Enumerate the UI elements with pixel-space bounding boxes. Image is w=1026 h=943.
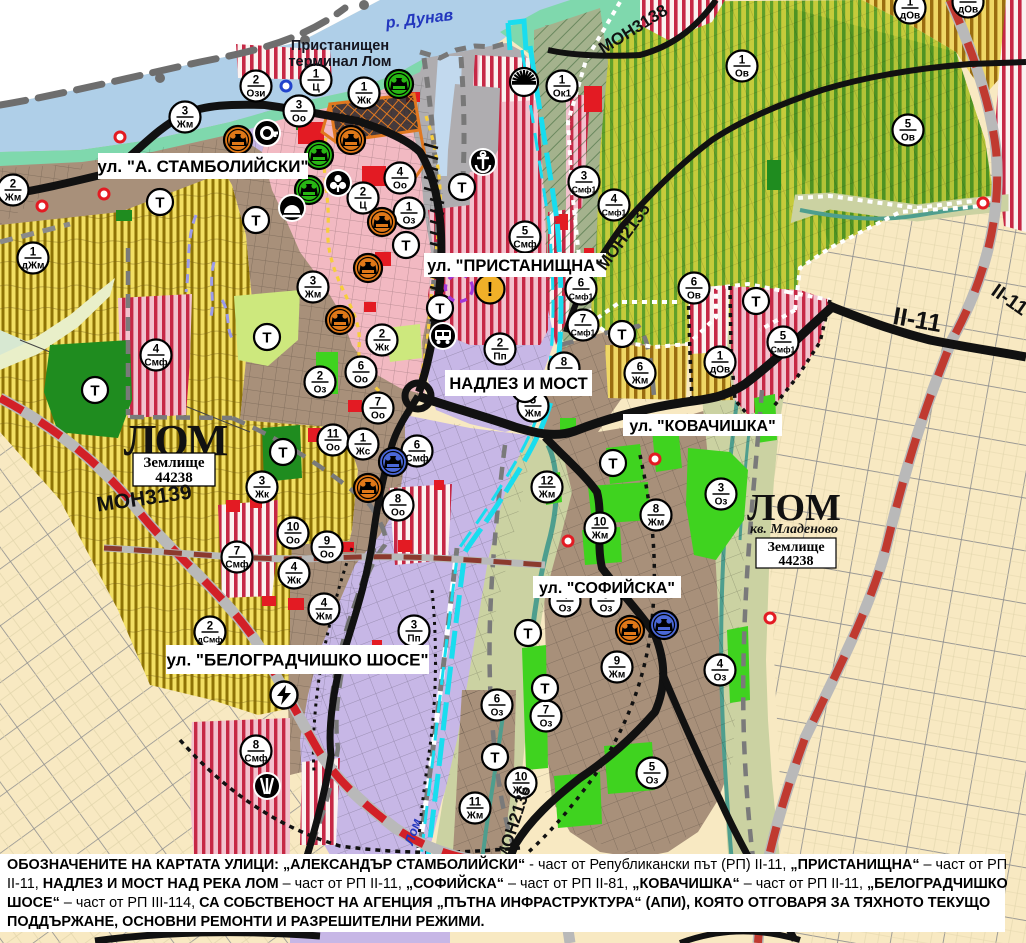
svg-text:Жс: Жс <box>355 447 371 458</box>
svg-text:4: 4 <box>153 344 160 356</box>
svg-text:Оз: Оз <box>715 497 728 508</box>
svg-text:Т: Т <box>155 195 164 212</box>
svg-text:3: 3 <box>296 100 302 112</box>
svg-text:Землище: Землище <box>143 455 205 471</box>
svg-text:2: 2 <box>360 187 366 199</box>
svg-text:10: 10 <box>515 772 528 784</box>
svg-text:Смф: Смф <box>225 559 248 571</box>
svg-text:2: 2 <box>207 621 213 633</box>
svg-text:4: 4 <box>717 659 724 671</box>
svg-text:2: 2 <box>253 75 259 87</box>
svg-text:Т: Т <box>278 445 287 462</box>
svg-text:5: 5 <box>522 226 529 238</box>
svg-text:Смф1: Смф1 <box>569 292 594 302</box>
svg-text:Жк: Жк <box>356 96 372 107</box>
svg-text:Смф1: Смф1 <box>571 328 596 338</box>
svg-text:10: 10 <box>287 522 300 534</box>
svg-text:Пристанищен: Пристанищен <box>291 38 389 54</box>
svg-text:3: 3 <box>259 476 265 488</box>
svg-text:Смф: Смф <box>405 453 428 465</box>
svg-text:Жк: Жк <box>254 490 270 501</box>
svg-text:ул. "СОФИЙСКА": ул. "СОФИЙСКА" <box>539 578 675 597</box>
svg-text:Смф: Смф <box>244 753 267 765</box>
svg-text:Жм: Жм <box>538 490 555 501</box>
svg-text:Ов: Ов <box>901 133 915 144</box>
svg-text:2: 2 <box>317 371 323 383</box>
svg-text:Оо: Оо <box>292 114 306 125</box>
svg-text:7: 7 <box>580 314 586 326</box>
svg-text:дСмф: дСмф <box>197 635 223 645</box>
svg-text:Жм: Жм <box>631 376 648 387</box>
svg-text:кв. Младеново: кв. Младеново <box>750 522 838 537</box>
svg-text:дОв: дОв <box>900 11 920 22</box>
svg-text:Смф: Смф <box>144 357 167 369</box>
svg-text:5: 5 <box>905 119 912 131</box>
svg-text:Оо: Оо <box>371 411 385 422</box>
svg-text:Землище: Землище <box>767 540 824 555</box>
svg-text:Т: Т <box>617 327 626 344</box>
svg-text:Ов: Ов <box>735 69 749 80</box>
svg-text:терминал Лом: терминал Лом <box>288 54 391 70</box>
svg-text:Жм: Жм <box>524 409 541 420</box>
svg-text:ул. "А. СТАМБОЛИЙСКИ": ул. "А. СТАМБОЛИЙСКИ" <box>97 157 308 176</box>
svg-text:Оз: Оз <box>491 708 504 719</box>
svg-text:Оз: Оз <box>714 673 727 684</box>
svg-text:6: 6 <box>691 277 697 289</box>
svg-text:дЖм: дЖм <box>22 261 45 272</box>
svg-text:Жм: Жм <box>4 193 21 204</box>
svg-text:Т: Т <box>251 213 260 230</box>
svg-text:9: 9 <box>324 536 330 548</box>
svg-text:8: 8 <box>395 494 402 506</box>
svg-text:1: 1 <box>965 0 972 3</box>
svg-text:Оо: Оо <box>354 375 368 386</box>
svg-text:ул. "ПРИСТАНИЩНА": ул. "ПРИСТАНИЩНА" <box>427 257 603 275</box>
svg-text:Оз: Оз <box>600 604 613 615</box>
svg-text:6: 6 <box>414 440 420 452</box>
svg-text:Жм: Жм <box>647 518 664 529</box>
svg-text:Жм: Жм <box>315 612 332 623</box>
svg-text:Жм: Жм <box>176 120 193 131</box>
svg-text:Пп: Пп <box>493 352 506 363</box>
svg-text:Ок1: Ок1 <box>553 89 572 100</box>
svg-text:8: 8 <box>653 504 660 516</box>
svg-text:Оз: Оз <box>314 385 327 396</box>
svg-text:ул. "КОВАЧИШКА": ул. "КОВАЧИШКА" <box>629 418 775 435</box>
svg-text:Оо: Оо <box>320 550 334 561</box>
svg-text:Оз: Оз <box>403 216 416 227</box>
svg-text:Смф: Смф <box>513 239 536 251</box>
svg-text:Жм: Жм <box>608 670 625 681</box>
svg-text:Оо: Оо <box>391 508 405 519</box>
svg-text:Т: Т <box>401 238 410 255</box>
svg-text:дОв: дОв <box>710 365 730 376</box>
svg-text:1: 1 <box>30 247 37 259</box>
svg-text:Жк: Жк <box>374 343 390 354</box>
svg-text:1: 1 <box>717 351 724 363</box>
svg-text:дОв: дОв <box>958 5 978 16</box>
svg-text:Оз: Оз <box>646 776 659 787</box>
svg-text:5: 5 <box>780 331 787 343</box>
svg-text:8: 8 <box>561 357 568 369</box>
svg-text:1: 1 <box>313 69 320 81</box>
svg-text:1: 1 <box>907 0 914 9</box>
svg-text:1: 1 <box>406 202 413 214</box>
svg-text:10: 10 <box>594 517 607 529</box>
svg-text:6: 6 <box>494 694 500 706</box>
svg-text:Пп: Пп <box>407 634 420 645</box>
svg-text:8: 8 <box>253 740 260 752</box>
svg-text:Оо: Оо <box>286 536 300 547</box>
svg-text:1: 1 <box>361 82 368 94</box>
svg-text:Смф1: Смф1 <box>602 208 627 218</box>
svg-text:1: 1 <box>360 433 367 445</box>
svg-text:Ц: Ц <box>359 201 367 212</box>
svg-text:6: 6 <box>358 361 364 373</box>
svg-text:Т: Т <box>540 681 549 698</box>
svg-text:Смф1: Смф1 <box>572 185 597 195</box>
svg-text:1: 1 <box>739 55 746 67</box>
svg-text:ул. "БЕЛОГРАДЧИШКО ШОСЕ": ул. "БЕЛОГРАДЧИШКО ШОСЕ" <box>166 651 428 670</box>
svg-text:9: 9 <box>614 656 620 668</box>
svg-text:Ози: Ози <box>247 89 266 100</box>
svg-text:Оо: Оо <box>393 181 407 192</box>
svg-text:3: 3 <box>718 483 724 495</box>
svg-text:!: ! <box>487 279 494 301</box>
svg-text:Т: Т <box>457 180 466 197</box>
svg-text:4: 4 <box>397 167 404 179</box>
svg-text:Оз: Оз <box>559 604 572 615</box>
svg-text:11: 11 <box>327 429 340 441</box>
svg-text:3: 3 <box>182 106 188 118</box>
svg-text:Жк: Жк <box>286 576 302 587</box>
svg-text:7: 7 <box>375 397 381 409</box>
svg-text:Т: Т <box>523 626 532 643</box>
svg-text:6: 6 <box>637 362 643 374</box>
svg-text:2: 2 <box>497 338 503 350</box>
svg-text:НАДЛЕЗ И МОСТ: НАДЛЕЗ И МОСТ <box>449 375 587 393</box>
svg-text:11: 11 <box>469 797 482 809</box>
svg-text:44238: 44238 <box>779 554 814 569</box>
svg-text:4: 4 <box>291 562 298 574</box>
svg-text:3: 3 <box>411 620 417 632</box>
svg-text:Т: Т <box>490 750 499 767</box>
svg-text:4: 4 <box>611 194 618 206</box>
svg-text:Т: Т <box>435 301 444 318</box>
svg-text:Жм: Жм <box>466 811 483 822</box>
svg-text:Смф1: Смф1 <box>771 345 796 355</box>
svg-text:7: 7 <box>543 705 549 717</box>
svg-text:Оз: Оз <box>540 719 553 730</box>
svg-text:5: 5 <box>649 762 656 774</box>
svg-text:Жм: Жм <box>304 290 321 301</box>
svg-text:12: 12 <box>541 476 554 488</box>
svg-text:4: 4 <box>321 598 328 610</box>
svg-text:Жм: Жм <box>591 531 608 542</box>
svg-text:Ов: Ов <box>687 291 701 302</box>
svg-text:Т: Т <box>608 456 617 473</box>
svg-text:Ц: Ц <box>312 83 320 94</box>
svg-text:6: 6 <box>578 278 584 290</box>
svg-text:7: 7 <box>234 546 240 558</box>
svg-text:3: 3 <box>310 276 316 288</box>
svg-text:Оо: Оо <box>326 443 340 454</box>
svg-text:2: 2 <box>379 329 385 341</box>
svg-text:Т: Т <box>751 294 760 311</box>
svg-text:2: 2 <box>10 179 16 191</box>
svg-text:Т: Т <box>90 383 99 400</box>
svg-text:3: 3 <box>581 171 587 183</box>
svg-text:1: 1 <box>559 75 566 87</box>
svg-text:Т: Т <box>262 330 271 347</box>
